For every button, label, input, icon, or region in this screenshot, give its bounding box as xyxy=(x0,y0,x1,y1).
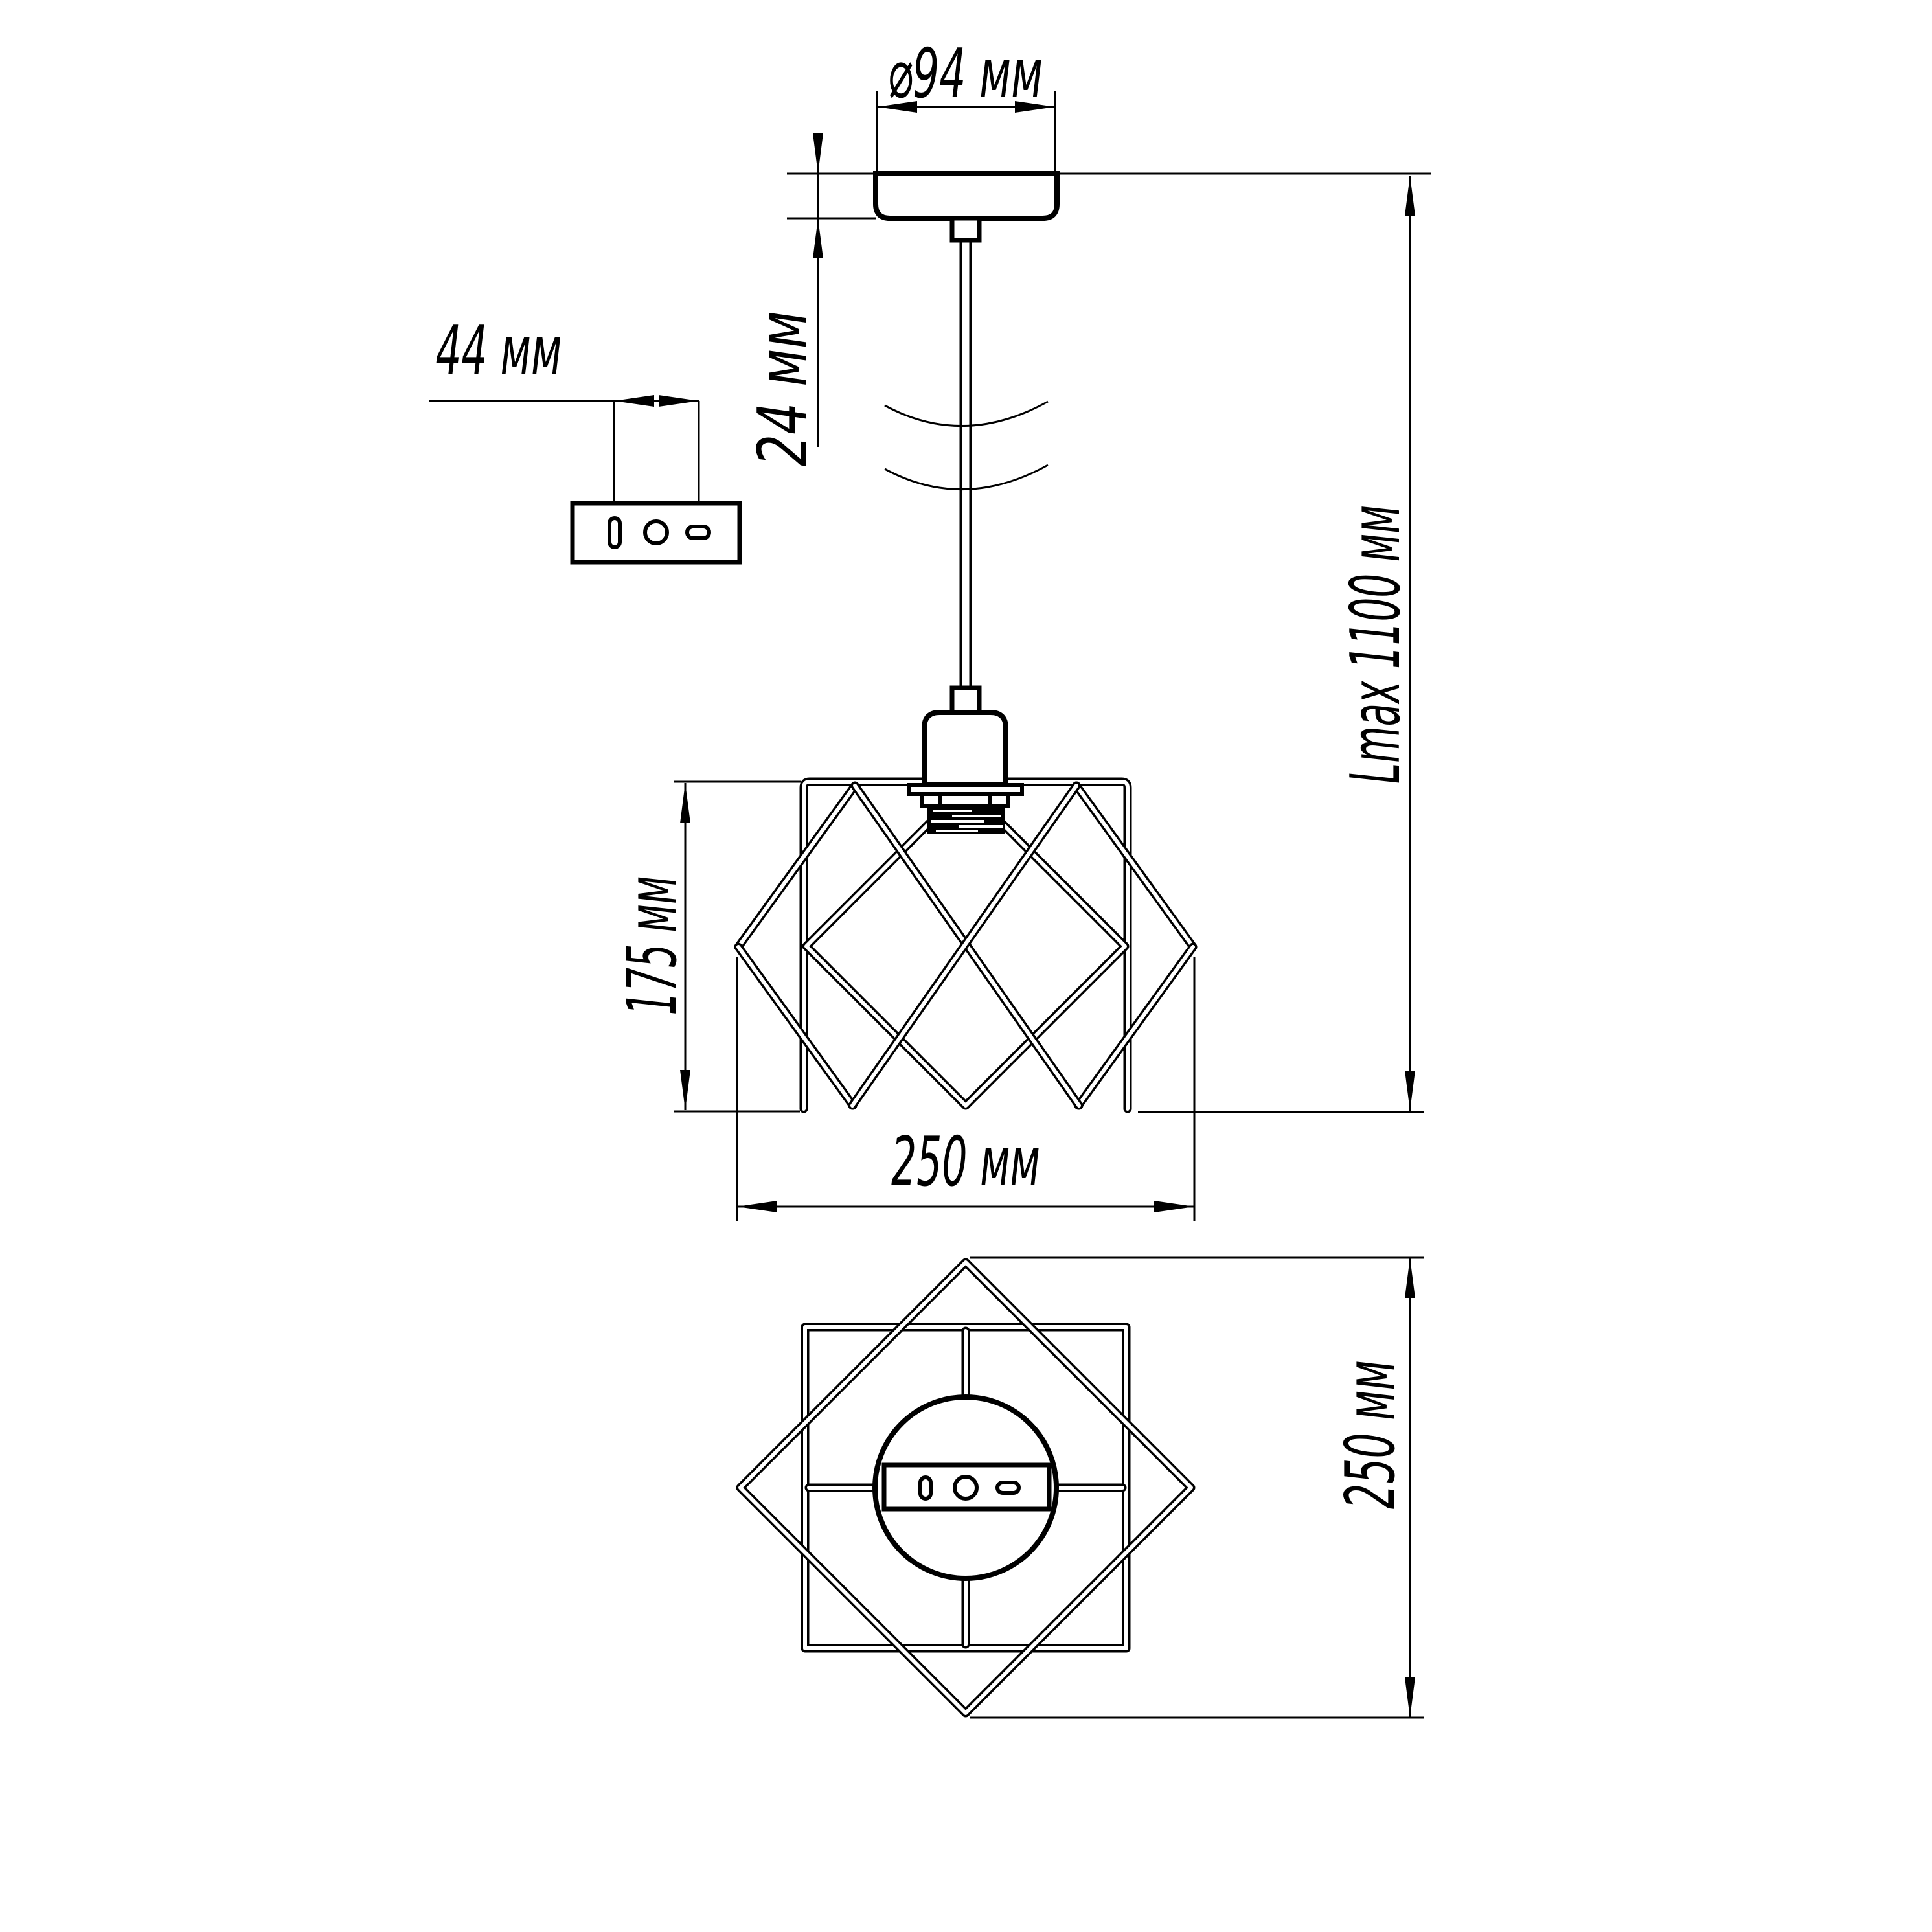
dim-shade-height: 175 мм xyxy=(613,782,801,1111)
mounting-bracket-front xyxy=(573,503,740,562)
dim-shade-height-label: 175 мм xyxy=(613,876,692,1016)
socket-strain-relief xyxy=(952,688,979,712)
arrow-down-icon xyxy=(680,1070,690,1110)
arrow-right-icon xyxy=(1154,1201,1194,1212)
socket-thread xyxy=(927,806,1005,834)
bracket-slot-right xyxy=(997,1483,1019,1493)
plan-mounting-bracket xyxy=(884,1465,1049,1509)
lamp-socket xyxy=(909,688,1022,834)
socket-cup xyxy=(924,712,1006,784)
ceiling-canopy xyxy=(876,174,1057,240)
arrow-left-icon xyxy=(737,1201,777,1212)
arrow-up-icon xyxy=(680,783,690,823)
dim-canopy-height: 24 мм xyxy=(744,133,876,466)
arrow-left-icon xyxy=(614,395,654,407)
bracket-slot-right xyxy=(687,527,709,538)
bracket-center-hole xyxy=(645,521,667,543)
dim-canopy-diameter-label: ⌀94 мм xyxy=(887,34,1043,113)
plan-view: 250 мм xyxy=(740,1258,1424,1718)
dim-plan-width-label: 250 мм xyxy=(1331,1360,1410,1509)
bracket-slot-left xyxy=(609,518,620,547)
dim-shade-width-label: 250 мм xyxy=(891,1122,1040,1201)
canopy-strain-relief xyxy=(952,218,979,240)
bracket-slot-left xyxy=(920,1477,931,1499)
dim-max-length-label: Lmax 1100 мм xyxy=(1336,505,1415,784)
arrow-down-icon xyxy=(1405,1677,1415,1718)
dim-canopy-diameter: ⌀94 мм xyxy=(877,34,1055,174)
arrow-down-icon xyxy=(1405,1071,1415,1111)
drawing-sheet: ⌀94 мм 24 мм Lmax 1100 мм 175 мм xyxy=(0,0,1932,1932)
dim-max-length: Lmax 1100 мм xyxy=(1138,176,1424,1112)
arrow-right-icon xyxy=(659,395,699,407)
dim-bracket-holes: 44 мм xyxy=(429,312,699,521)
dim-bracket-holes-label: 44 мм xyxy=(436,312,562,391)
arrow-up-icon xyxy=(813,218,823,258)
bracket-detail: 44 мм xyxy=(429,312,740,562)
arrow-down-icon xyxy=(813,133,823,174)
dim-canopy-height-label: 24 мм xyxy=(744,311,823,466)
socket-nut xyxy=(922,794,1008,806)
arrow-up-icon xyxy=(1405,1258,1415,1298)
arrow-up-icon xyxy=(1405,176,1415,216)
bracket-center-hole xyxy=(955,1477,977,1499)
front-view: ⌀94 мм 24 мм Lmax 1100 мм 175 мм xyxy=(613,34,1431,1221)
